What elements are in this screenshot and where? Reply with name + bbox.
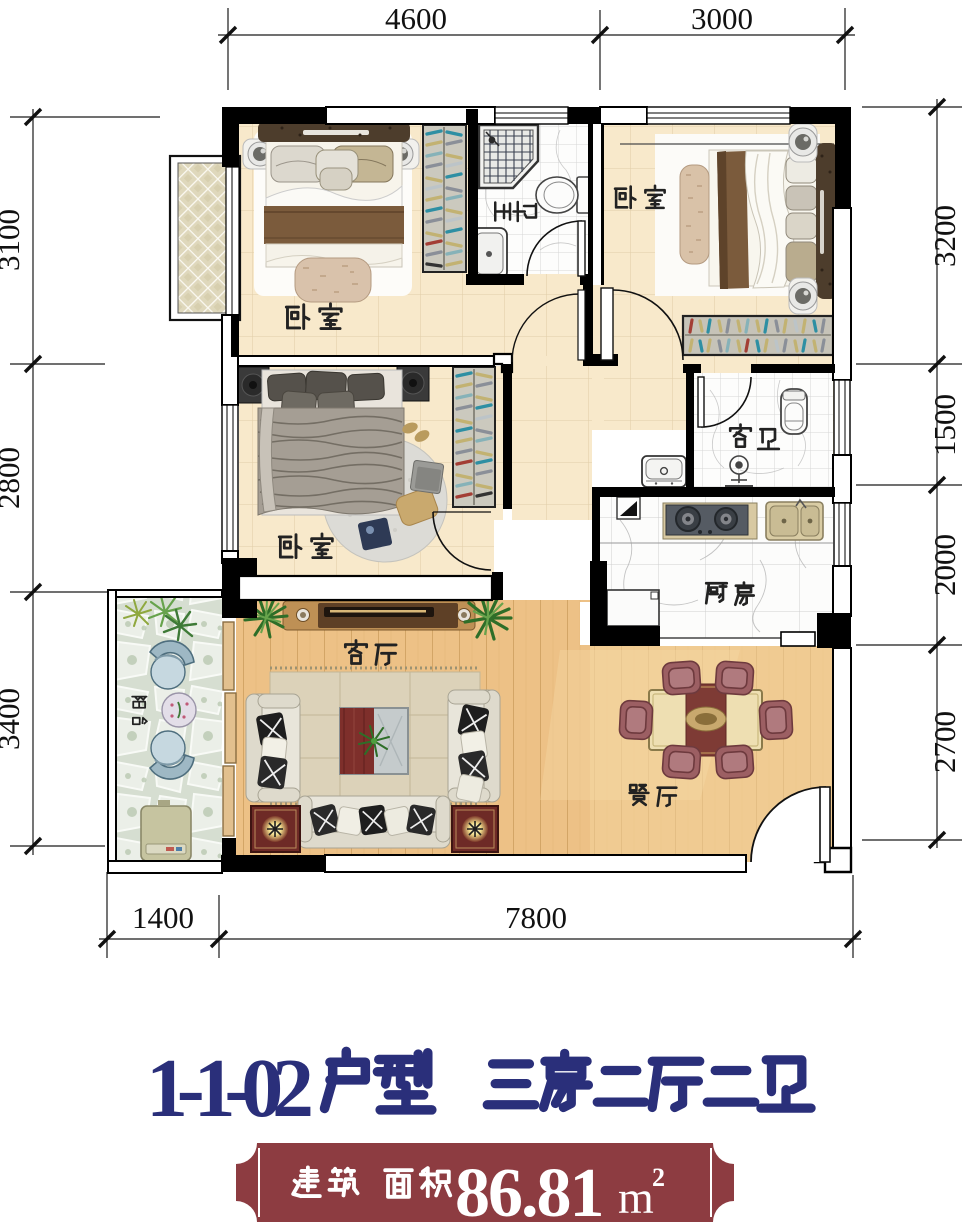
svg-text:1500: 1500 xyxy=(927,394,962,456)
svg-text:86.81: 86.81 xyxy=(455,1155,603,1225)
svg-text:2800: 2800 xyxy=(0,447,26,509)
svg-text:7800: 7800 xyxy=(505,900,567,935)
svg-text:1400: 1400 xyxy=(132,900,194,935)
svg-text:m: m xyxy=(618,1172,654,1223)
svg-text:1-1-02: 1-1-02 xyxy=(146,1042,314,1135)
svg-text:3200: 3200 xyxy=(927,205,962,267)
svg-text:2000: 2000 xyxy=(927,534,962,596)
svg-text:2: 2 xyxy=(652,1163,665,1192)
svg-text:3400: 3400 xyxy=(0,688,26,750)
svg-text:3000: 3000 xyxy=(691,1,753,36)
svg-text:4600: 4600 xyxy=(385,1,447,36)
svg-text:3100: 3100 xyxy=(0,209,26,271)
svg-text:2700: 2700 xyxy=(927,711,962,773)
